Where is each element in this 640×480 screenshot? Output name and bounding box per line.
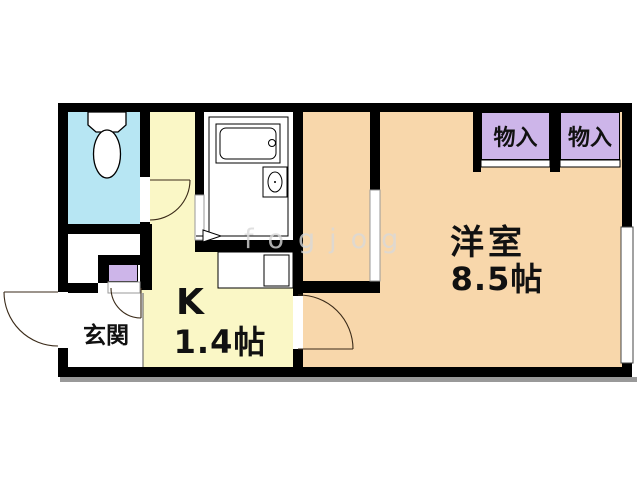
- floorplan-canvas: 物入 物入 洋室 8.5帖 K 1.4帖 玄関 fogjog: [0, 0, 640, 480]
- kitchen-size-label: 1.4帖: [150, 322, 290, 358]
- kitchen-sink-icon: [218, 252, 293, 288]
- entry-door-opening: [58, 292, 68, 348]
- entrance-label: 玄関: [70, 320, 142, 346]
- western-room-label: 洋室: [428, 220, 548, 258]
- sliding-closet-doors-right: [560, 160, 620, 167]
- kitchen-label: K: [160, 284, 220, 320]
- sliding-closet-doors-left: [481, 160, 550, 167]
- shoe-closet-opening: [108, 282, 140, 293]
- western-room-size-label: 8.5帖: [428, 259, 566, 295]
- bathroom-unit: [196, 117, 288, 242]
- entry-door-swing-icon: [4, 292, 58, 346]
- toilet-door-swing-icon: [150, 180, 190, 220]
- room-door-opening: [293, 296, 303, 349]
- bathtub-icon: [216, 124, 280, 163]
- toilet-icon: [88, 112, 126, 178]
- room-door-swing-icon: [298, 295, 353, 349]
- storage-left-label: 物入: [481, 112, 550, 160]
- toilet-door-opening: [140, 177, 150, 222]
- window-strip: [621, 227, 633, 363]
- bath-sink-icon: [263, 167, 287, 197]
- nook-opening: [370, 190, 380, 281]
- storage-right-label: 物入: [560, 112, 620, 160]
